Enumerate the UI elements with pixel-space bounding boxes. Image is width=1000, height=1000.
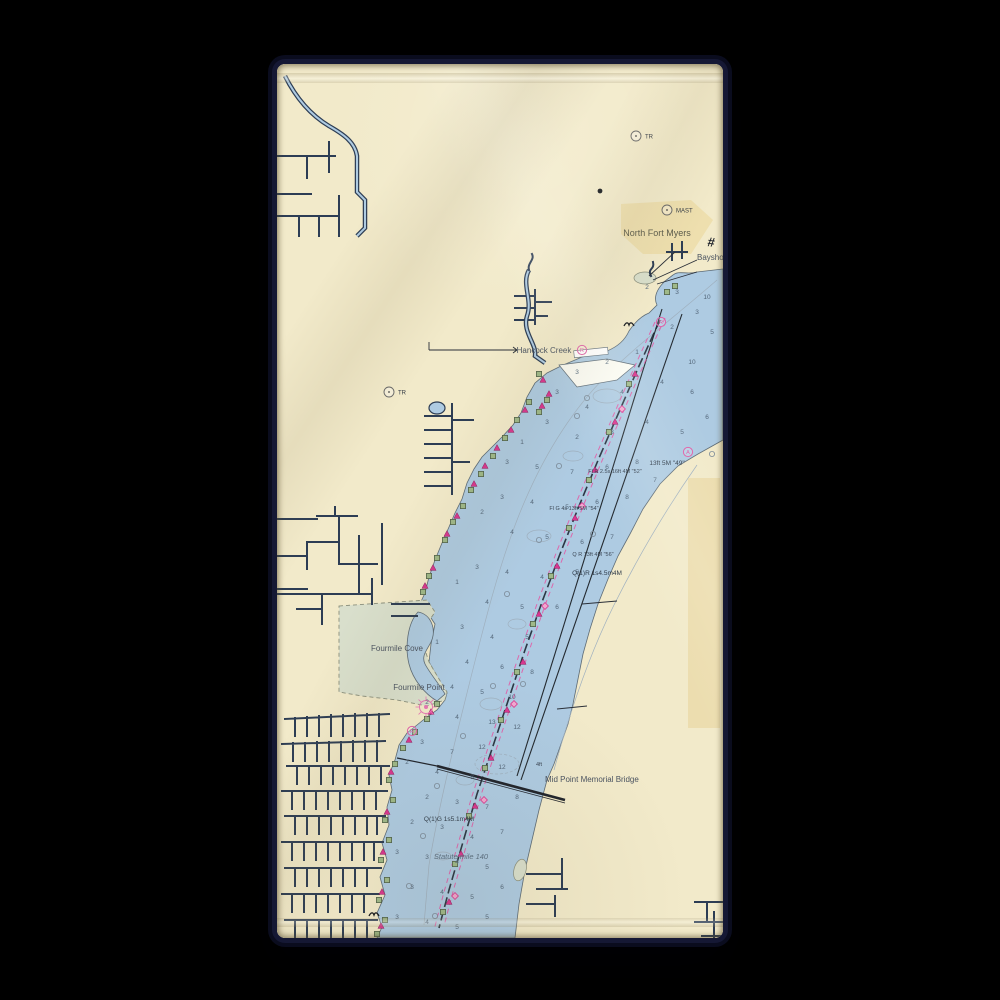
sounding: 4: [510, 529, 514, 536]
sounding: 2: [425, 794, 429, 801]
map-label-light-13ft: 13ft 5M "49": [649, 460, 685, 467]
sounding: 8: [530, 669, 534, 676]
station-center-dot: [666, 209, 668, 211]
sounding: 3: [695, 309, 699, 316]
daybeacon-square-icon: [424, 716, 429, 721]
daybeacon-square-icon: [426, 573, 431, 578]
sounding: 3: [460, 624, 464, 631]
map-label-light-qr13: Q R 13ft 4M "56": [572, 552, 613, 558]
sounding: 3: [675, 289, 679, 296]
sounding: 10: [688, 359, 696, 366]
mockup-scene: # RRAR 233521233444665432313576878654324…: [0, 0, 1000, 1000]
sounding: 3: [575, 369, 579, 376]
pink-ring-letter: R: [659, 320, 663, 326]
sounding: 3: [475, 564, 479, 571]
sounding: 6: [500, 664, 504, 671]
sounding: 3: [505, 459, 509, 466]
landmark-dot-icon: [598, 189, 603, 194]
daybeacon-square-icon: [440, 909, 445, 914]
daybeacon-square-icon: [536, 371, 541, 376]
daybeacon-square-icon: [626, 381, 631, 386]
daybeacon-square-icon: [514, 417, 519, 422]
daybeacon-square-icon: [434, 555, 439, 560]
sounding: 2: [645, 284, 649, 291]
sounding: 2: [410, 819, 414, 826]
sounding: 5: [525, 634, 529, 641]
station-label: TR: [398, 391, 407, 397]
sounding: 5: [680, 429, 684, 436]
station-center-dot: [635, 135, 637, 137]
sounding: 3: [500, 494, 504, 501]
daybeacon-square-icon: [514, 669, 519, 674]
sounding: 2: [405, 759, 409, 766]
sounding: 4: [505, 569, 509, 576]
station-label: TR: [645, 135, 654, 141]
sounding: 7: [450, 749, 454, 756]
daybeacon-square-icon: [586, 477, 591, 482]
sounding: 2: [575, 434, 579, 441]
pink-ring-letter: R: [580, 348, 584, 354]
sounding: 12: [478, 744, 486, 751]
sounding: 5: [535, 464, 539, 471]
sounding: 4: [490, 634, 494, 641]
station-label: MAST: [676, 209, 693, 215]
sounding: 8: [625, 494, 629, 501]
map-label-light-flg: Fl G 4s 13ft 5M "54": [549, 506, 598, 512]
sounding: 6: [705, 414, 709, 421]
daybeacon-square-icon: [548, 573, 553, 578]
map-label-fourmile-point: Fourmile Point: [393, 683, 445, 692]
sounding: 4: [660, 379, 664, 386]
sounding: 12: [498, 764, 506, 771]
map-label-bayshore-rd: Bayshore R: [697, 253, 723, 262]
daybeacon-square-icon: [566, 525, 571, 530]
pink-ring-letter: R: [410, 729, 414, 735]
map-label-light-q1g: Q(1)G 1s5.1m4M: [424, 816, 474, 823]
sounding: 8: [470, 774, 474, 781]
sounding: 5: [470, 894, 474, 901]
sounding: 6: [500, 884, 504, 891]
daybeacon-square-icon: [498, 717, 503, 722]
map-label-mid-point-memorial-bridge: Mid Point Memorial Bridge: [545, 775, 639, 784]
daybeacon-square-icon: [374, 931, 379, 936]
daybeacon-square-icon: [502, 435, 507, 440]
daybeacon-square-icon: [460, 503, 465, 508]
daybeacon-square-icon: [400, 745, 405, 750]
sounding: 5: [710, 329, 714, 336]
sounding: 3: [440, 824, 444, 831]
sounding: 4: [530, 499, 534, 506]
daybeacon-square-icon: [386, 777, 391, 782]
sounding: 13: [488, 719, 496, 726]
sounding: 5: [480, 689, 484, 696]
sounding: 4: [620, 389, 624, 396]
daybeacon-square-icon: [450, 519, 455, 524]
sounding: 3: [610, 429, 614, 436]
sounding: 8: [515, 794, 519, 801]
daybeacon-square-icon: [478, 471, 483, 476]
sounding: 10: [508, 694, 516, 701]
sounding: 4: [440, 889, 444, 896]
daybeacon-square-icon: [390, 797, 395, 802]
map-label-bridge-clearance: 4ft: [536, 762, 543, 768]
daybeacon-square-icon: [442, 537, 447, 542]
daybeacon-square-icon: [530, 621, 535, 626]
beach-towel: # RRAR 233521233444665432313576878654324…: [277, 64, 723, 938]
sounding: 1: [435, 639, 439, 646]
sounding: 12: [513, 724, 521, 731]
sounding: 4: [585, 404, 589, 411]
sounding: 6: [595, 499, 599, 506]
daybeacon-square-icon: [468, 487, 473, 492]
sounding: 1: [455, 579, 459, 586]
sounding: 2: [480, 509, 484, 516]
daybeacon-square-icon: [482, 765, 487, 770]
daybeacon-square-icon: [536, 409, 541, 414]
sounding: 7: [500, 829, 504, 836]
sounding: 4: [465, 659, 469, 666]
sounding: 3: [555, 389, 559, 396]
map-label-statute-mile-140: Statute mile 140: [434, 852, 489, 861]
sounding: 4: [450, 684, 454, 691]
daybeacon-square-icon: [386, 837, 391, 842]
sounding: 3: [455, 799, 459, 806]
towel-hem-bottom: [277, 918, 723, 927]
sounding: 4: [435, 769, 439, 776]
pink-ring-letter: A: [686, 450, 690, 456]
daybeacon-square-icon: [490, 453, 495, 458]
sounding: 7: [485, 804, 489, 811]
sounding: 2: [605, 359, 609, 366]
sounding: 5: [545, 534, 549, 541]
sounding: 8: [635, 459, 639, 466]
sounding: 6: [690, 389, 694, 396]
daybeacon-square-icon: [392, 761, 397, 766]
map-label-light-flr: Fl R 2.5s 16ft 4M "52": [588, 469, 641, 475]
sounding: 4: [470, 834, 474, 841]
daybeacon-square-icon: [544, 397, 549, 402]
map-label-light-q1r: Q(1)R 1s4.5m4M: [572, 570, 622, 577]
sounding: 5: [485, 864, 489, 871]
sounding: 4: [485, 599, 489, 606]
sounding: 1: [635, 349, 639, 356]
sounding: 2: [670, 324, 674, 331]
sounding: 7: [570, 469, 574, 476]
sounding: 7: [653, 477, 657, 484]
sounding: 5: [520, 604, 524, 611]
towel-hem-top: [277, 73, 723, 83]
sounding: 4: [540, 574, 544, 581]
sounding: 3: [420, 739, 424, 746]
daybeacon-square-icon: [420, 589, 425, 594]
sounding: 6: [555, 604, 559, 611]
sounding: 10: [703, 294, 711, 301]
daybeacon-square-icon: [384, 877, 389, 882]
sounding: 3: [545, 419, 549, 426]
sounding: 3: [410, 884, 414, 891]
sounding: 7: [610, 534, 614, 541]
station-center-dot: [388, 391, 390, 393]
sounding: 6: [580, 539, 584, 546]
sounding: 2: [425, 699, 429, 706]
daybeacon-square-icon: [378, 857, 383, 862]
daybeacon-square-icon: [526, 399, 531, 404]
sounding: 3: [425, 854, 429, 861]
daybeacon-square-icon: [664, 289, 669, 294]
sounding: 4: [455, 714, 459, 721]
sounding: 3: [395, 849, 399, 856]
map-label-north-fort-myers: North Fort Myers: [623, 228, 691, 238]
daybeacon-square-icon: [434, 701, 439, 706]
map-label-hancock-creek: Hancock Creek: [517, 346, 573, 355]
daybeacon-square-icon: [376, 897, 381, 902]
map-label-fourmile-cove: Fourmile Cove: [371, 644, 424, 653]
sounding: 1: [520, 439, 524, 446]
nautical-chart: # RRAR 233521233444665432313576878654324…: [277, 64, 723, 938]
daybeacon-square-icon: [382, 817, 387, 822]
daybeacon-square-icon: [672, 283, 677, 288]
sounding: 4: [645, 419, 649, 426]
